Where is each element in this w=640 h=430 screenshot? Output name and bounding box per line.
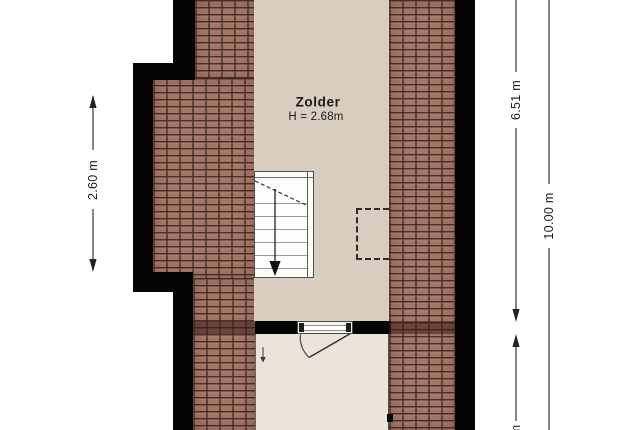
dashed-opening-outline — [356, 208, 389, 260]
stair-treads — [255, 191, 307, 277]
roof-tiles-right — [389, 0, 455, 430]
exterior-wall-step-lower — [133, 272, 193, 292]
interior-wall-left — [255, 321, 297, 334]
door-post-left — [299, 323, 304, 332]
interior-wall-right — [353, 321, 391, 334]
floor-plan: Zolder H = 2.68m 2.60 m 6.51 m 10.00 m m — [0, 0, 640, 430]
dimension-label-right-total: 10.00 m — [542, 192, 556, 239]
exterior-wall-right — [455, 0, 475, 430]
stair-stringer — [307, 172, 308, 277]
lower-room — [255, 334, 389, 430]
roof-tiles-top-left — [195, 0, 255, 80]
stair-top-frame-line — [255, 177, 313, 178]
dimension-line-right-upper — [512, 0, 519, 322]
dimension-label-right-lower-partial: m — [509, 425, 523, 430]
exterior-wall-bottom-left — [173, 290, 193, 430]
roof-tiles-bottom-left — [193, 278, 255, 430]
door — [297, 321, 353, 334]
dimension-label-left: 2.60 m — [86, 160, 100, 200]
door-panel — [303, 325, 347, 331]
dimension-line-right-lower — [512, 334, 519, 421]
room-name-label: Zolder — [296, 95, 341, 110]
interior-wall-under-roof-left — [193, 321, 255, 334]
room-height-label: H = 2.68m — [288, 111, 343, 123]
door-post-right — [346, 323, 351, 332]
wall-stub — [387, 414, 393, 422]
staircase — [254, 171, 314, 278]
roof-tiles-left — [153, 78, 255, 278]
exterior-wall-left — [133, 78, 153, 276]
dimension-label-right-upper: 6.51 m — [509, 80, 523, 120]
exterior-wall-top-left — [173, 0, 195, 70]
interior-wall-under-roof-right — [389, 321, 455, 334]
